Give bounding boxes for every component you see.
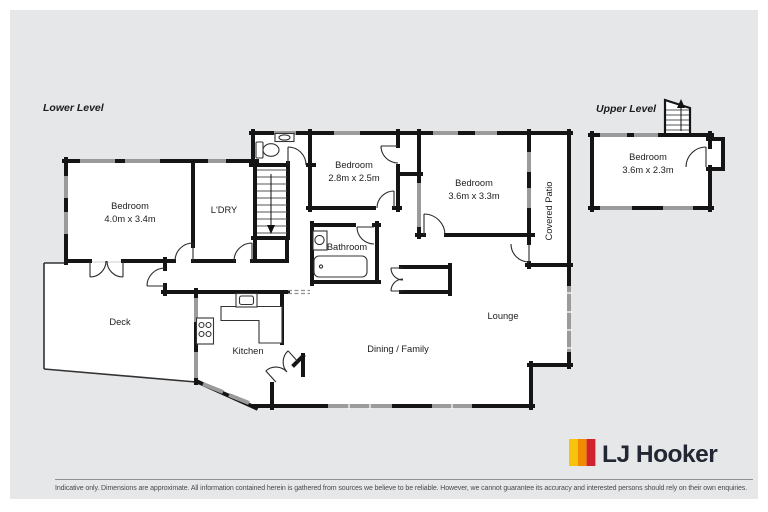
room-dims-bedroom-upper: 3.6m x 2.3m [622, 165, 673, 175]
room-label-deck: Deck [109, 317, 131, 327]
room-label-laundry: L'DRY [211, 205, 237, 215]
room-label-dining-family: Dining / Family [367, 344, 429, 354]
room-dims-bedroom-middle: 2.8m x 2.5m [328, 173, 379, 183]
room-label-lounge: Lounge [487, 311, 518, 321]
ljhooker-logo: LJ Hooker [569, 439, 718, 468]
room-label-bedroom-middle: Bedroom [335, 160, 373, 170]
room-label-bedroom-main: Bedroom [111, 201, 149, 211]
logo-stripe-red [587, 439, 596, 466]
room-label-kitchen: Kitchen [232, 346, 263, 356]
room-label-bedroom-upper: Bedroom [629, 152, 667, 162]
room-dims-bedroom-main: 4.0m x 3.4m [104, 214, 155, 224]
logo-stripe-orange [578, 439, 587, 466]
lower-level-plan: Bedroom 4.0m x 3.4m L'DRY Bedroom 2.8m x… [44, 131, 572, 409]
floorplan-page: Lower Level Upper Level [0, 0, 768, 512]
room-label-bedroom-right: Bedroom [455, 178, 493, 188]
disclaimer-text: Indicative only. Dimensions are approxim… [55, 485, 755, 492]
logo-stripe-yellow [569, 439, 578, 466]
room-label-bathroom: Bathroom [327, 242, 368, 252]
footer-divider [55, 479, 753, 480]
floorplan-canvas: Lower Level Upper Level [0, 0, 768, 512]
upper-level-label: Upper Level [596, 103, 657, 115]
cooktop [197, 318, 214, 344]
room-label-covered-patio: Covered Patio [544, 182, 554, 241]
logo-text: LJ Hooker [602, 441, 718, 468]
lower-level-label: Lower Level [43, 102, 105, 114]
room-dims-bedroom-right: 3.6m x 3.3m [448, 191, 499, 201]
